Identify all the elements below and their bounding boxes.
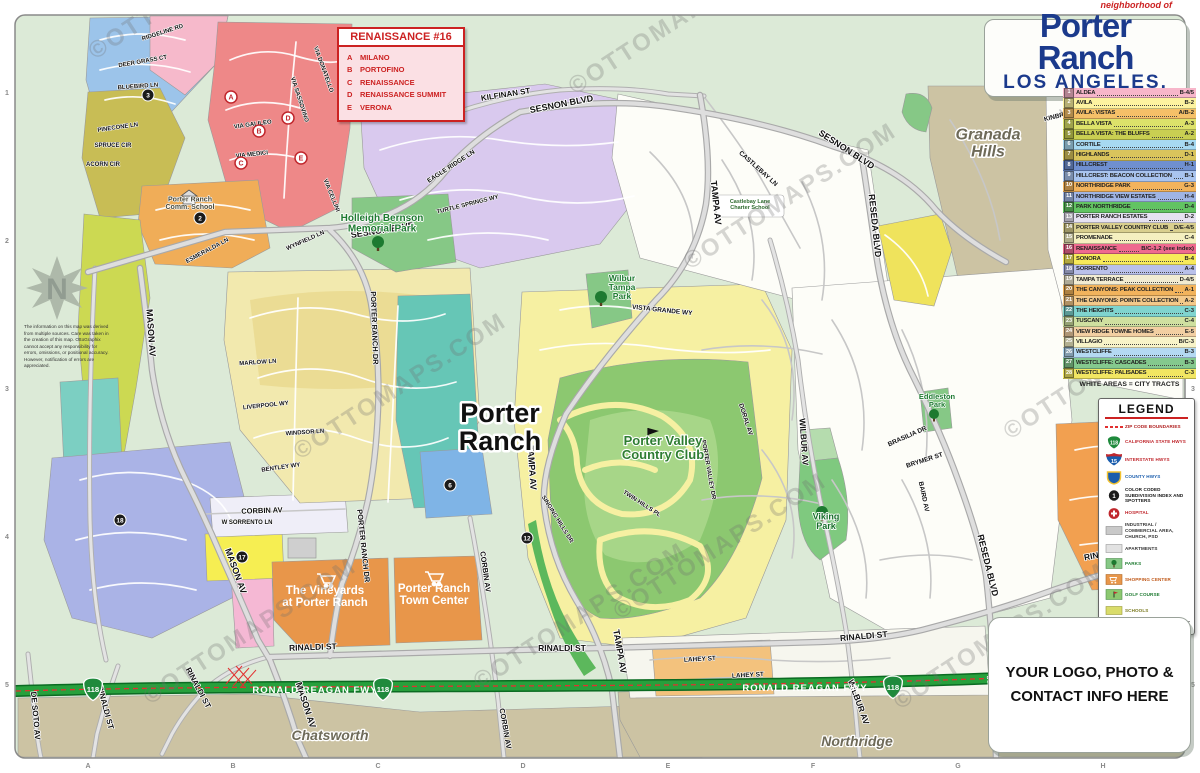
legend-symbol-label: GOLF COURSE <box>1125 592 1160 598</box>
index-number-chip: 3 <box>1064 108 1074 118</box>
index-number-chip: 25 <box>1064 337 1074 347</box>
shopping-center-icon <box>1103 573 1125 586</box>
index-subdivision-name: BELLA VISTA: THE BLUFFS <box>1076 131 1150 137</box>
index-grid-ref: C-3 <box>1185 370 1195 376</box>
hospital-icon <box>1103 507 1125 520</box>
subdivision-index-row: 5BELLA VISTA: THE BLUFFSA-2 <box>1063 130 1196 140</box>
county-hwy-shield-icon <box>1103 470 1125 485</box>
grid-column-label: C <box>375 763 380 770</box>
industrial-block <box>288 538 316 558</box>
poi-label: VikingPark <box>813 511 840 531</box>
legend-symbol-row: 118CALIFORNIA STATE HWYS <box>1103 435 1190 450</box>
disclaimer-text: The information on this map was derived … <box>24 324 110 370</box>
subdivision-index-row: 19TAMPA TERRACED-4/5 <box>1063 275 1196 285</box>
index-number-chip: 13 <box>1064 212 1074 222</box>
index-dot-leader <box>1105 318 1182 325</box>
svg-text:2: 2 <box>198 216 202 223</box>
legend-symbol-row: COUNTY HWYS <box>1103 470 1190 485</box>
index-dot-leader <box>1148 360 1182 367</box>
index-grid-ref: B-3 <box>1185 360 1195 366</box>
index-dot-leader <box>1158 193 1183 200</box>
legend-symbol-row: 1COLOR CODED SUBDIVISION INDEX AND SPOTT… <box>1103 487 1190 504</box>
index-grid-ref: A-4 <box>1185 266 1195 272</box>
legend-symbol-row: SHOPPING CENTER <box>1103 573 1190 586</box>
subdivision-index-rows: 1ALDEAB-4/52AVILAB-23AVILA: VISTASA/B-24… <box>1063 88 1196 379</box>
renaissance-index-entry: BPORTOFINO <box>347 64 455 76</box>
svg-text:C: C <box>238 161 243 168</box>
index-number-chip: 24 <box>1064 327 1074 337</box>
parks-swatch-icon <box>1103 557 1125 570</box>
legend-symbol-label: COLOR CODED SUBDIVISION INDEX AND SPOTTE… <box>1125 487 1190 504</box>
legend-symbol-row: GOLF COURSE <box>1103 588 1190 601</box>
legend-symbol-label: PARKS <box>1125 561 1141 567</box>
index-grid-ref: G-3 <box>1184 183 1194 189</box>
index-dot-leader <box>1114 349 1183 356</box>
index-subdivision-name: VILLAGIO <box>1076 339 1102 345</box>
subdivision-index-row: 23TUSCANYC-4 <box>1063 317 1196 327</box>
grid-column-label: B <box>230 763 235 770</box>
legend-symbol-rows: ZIP CODE BOUNDARIES118CALIFORNIA STATE H… <box>1103 422 1190 617</box>
poi-label: Porter RanchTown Center <box>398 583 470 607</box>
index-subdivision-name: SORRENTO <box>1076 266 1108 272</box>
index-dot-leader <box>1152 131 1183 138</box>
index-grid-ref: D-1 <box>1185 152 1195 158</box>
poi-label: Holleigh BernsonMemorial Park <box>341 213 424 235</box>
renaissance-spotter: D <box>282 112 294 124</box>
svg-text:15: 15 <box>1111 459 1117 465</box>
legend-symbol-label: SCHOOLS <box>1125 608 1148 614</box>
renaissance-entry-key: B <box>347 64 360 76</box>
legend-box: LEGEND ZIP CODE BOUNDARIES118CALIFORNIA … <box>1098 398 1195 635</box>
index-grid-ref: B-1 <box>1185 173 1195 179</box>
index-grid-ref: B-2 <box>1185 100 1195 106</box>
poi-label: Porter ValleyCountry Club <box>622 433 704 462</box>
legend-symbol-row: PARKS <box>1103 557 1190 570</box>
index-number-chip: 28 <box>1064 368 1074 378</box>
grid-column-label: G <box>955 763 961 770</box>
index-dot-leader <box>1102 141 1182 148</box>
index-dot-leader <box>1149 214 1182 221</box>
white-areas-note: WHITE AREAS = CITY TRACTS <box>1063 381 1196 388</box>
index-number-chip: 16 <box>1064 244 1074 254</box>
svg-text:D: D <box>285 116 290 123</box>
subdivision-index-row: 15PROMENADEC-4 <box>1063 233 1196 243</box>
index-number-chip: 20 <box>1064 285 1074 295</box>
index-dot-leader <box>1103 256 1183 263</box>
apartments-swatch-icon <box>1103 542 1125 555</box>
legend-symbol-label: COUNTY HWYS <box>1125 474 1160 480</box>
legend-symbol-row: ZIP CODE BOUNDARIES <box>1103 422 1190 432</box>
renaissance-entry-key: A <box>347 52 360 64</box>
subdivision-index-row: 13PORTER RANCH ESTATESD-2 <box>1063 213 1196 223</box>
street-label: CORBIN AV <box>241 505 283 515</box>
index-grid-ref: A-2 <box>1185 298 1195 304</box>
index-dot-leader <box>1174 173 1183 180</box>
svg-text:A: A <box>228 95 233 102</box>
legend-symbol-row: INDUSTRIAL / COMMERCIAL AREA, CHURCH, PS… <box>1103 522 1190 539</box>
state-route-number: 118 <box>377 685 390 694</box>
index-dot-leader <box>1125 276 1177 283</box>
renaissance-entry-name: MILANO <box>360 52 390 64</box>
index-subdivision-name: TAMPA TERRACE <box>1076 277 1123 283</box>
subdivision-spotter: 18 <box>114 514 126 526</box>
index-grid-ref: B/C-3 <box>1179 339 1194 345</box>
legend-title: LEGEND <box>1103 402 1190 416</box>
index-subdivision-name: WESTCLIFFE <box>1076 349 1112 355</box>
subdivision-index: 1ALDEAB-4/52AVILAB-23AVILA: VISTASA/B-24… <box>1063 88 1196 388</box>
index-subdivision-name: RENAISSANCE <box>1076 246 1117 252</box>
index-dot-leader <box>1115 308 1182 315</box>
index-number-chip: 5 <box>1064 129 1074 139</box>
subdivision-spotter-icon: 1 <box>1103 489 1125 502</box>
index-dot-leader <box>1111 152 1182 159</box>
page-title: Porter Ranch <box>991 10 1180 73</box>
renaissance-spotter: A <box>225 91 237 103</box>
index-number-chip: 1 <box>1064 88 1074 98</box>
state-route-number: 118 <box>87 685 100 694</box>
svg-text:3: 3 <box>146 93 150 100</box>
school-swatch-icon <box>1103 604 1125 617</box>
index-subdivision-name: BELLA VISTA <box>1076 121 1112 127</box>
index-subdivision-name: CORTILE <box>1076 142 1100 148</box>
index-subdivision-name: HIGHLANDS <box>1076 152 1109 158</box>
index-dot-leader <box>1115 235 1183 242</box>
index-number-chip: 6 <box>1064 140 1074 150</box>
index-grid-ref: B-4 <box>1185 256 1195 262</box>
index-subdivision-name: NORTHRIDGE PARK <box>1076 183 1131 189</box>
grid-column-label: F <box>811 763 816 770</box>
index-subdivision-name: WESTCLIFFE: CASCADES <box>1076 360 1146 366</box>
grid-row-label: 4 <box>5 534 9 541</box>
index-dot-leader <box>1175 287 1182 294</box>
renaissance-index-entry: AMILANO <box>347 52 455 64</box>
contact-placeholder-box: YOUR LOGO, PHOTO & CONTACT INFO HERE <box>988 617 1191 753</box>
legend-symbol-label: CALIFORNIA STATE HWYS <box>1125 439 1186 445</box>
index-number-chip: 21 <box>1064 296 1074 306</box>
index-grid-ref: C-3 <box>1185 308 1195 314</box>
grid-row-label: 3 <box>5 386 9 393</box>
grid-row-label: 2 <box>5 238 9 245</box>
subdivision-index-row: 8HILLCRESTH-1 <box>1063 161 1196 171</box>
index-dot-leader <box>1114 121 1183 128</box>
legend-symbol-row: APARTMENTS <box>1103 542 1190 555</box>
subdivision-index-row: 16RENAISSANCEB/C-1,2 (see index) <box>1063 244 1196 254</box>
index-number-chip: 14 <box>1064 223 1074 233</box>
index-subdivision-name: AVILA <box>1076 100 1092 106</box>
index-grid-ref: C-4 <box>1185 235 1195 241</box>
renaissance-index-entry: DRENAISSANCE SUMMIT <box>347 89 455 101</box>
index-number-chip: 23 <box>1064 316 1074 326</box>
index-subdivision-name: TUSCANY <box>1076 318 1103 324</box>
poi-label: Porter RanchComm. School <box>165 196 214 211</box>
renaissance-entry-key: E <box>347 102 360 114</box>
subdivision-spotter: 12 <box>521 532 533 544</box>
index-number-chip: 15 <box>1064 233 1074 243</box>
street-label: ACORN CIR <box>86 162 121 168</box>
subdivision-index-row: 1ALDEAB-4/5 <box>1063 88 1196 98</box>
index-subdivision-name: PARK NORTHRIDGE <box>1076 204 1131 210</box>
index-grid-ref: D-4 <box>1185 204 1195 210</box>
grid-column-label: A <box>85 763 90 770</box>
legend-symbol-row: HOSPITAL <box>1103 507 1190 520</box>
street-label: W SORRENTO LN <box>222 520 273 526</box>
svg-text:12: 12 <box>523 536 531 543</box>
index-number-chip: 19 <box>1064 275 1074 285</box>
freeway-label: RONALD REAGAN FWY <box>252 685 377 696</box>
subdivision-index-row: 20THE CANYONS: PEAK COLLECTIONA-1 <box>1063 285 1196 295</box>
index-dot-leader <box>1156 328 1183 335</box>
index-subdivision-name: PORTER RANCH ESTATES <box>1076 214 1147 220</box>
index-number-chip: 2 <box>1064 98 1074 108</box>
renaissance-index-box: RENAISSANCE #16 AMILANOBPORTOFINOCRENAIS… <box>337 27 465 122</box>
subdivision-index-row: 12PARK NORTHRIDGED-4 <box>1063 202 1196 212</box>
legend-rule <box>1105 417 1188 419</box>
golf-course-icon <box>1103 588 1125 601</box>
index-subdivision-name: PORTER VALLEY COUNTRY CLUB <box>1076 225 1168 231</box>
legend-symbol-label: ZIP CODE BOUNDARIES <box>1125 424 1181 430</box>
index-grid-ref: B-3 <box>1185 349 1195 355</box>
index-grid-ref: D-4/5 <box>1180 277 1194 283</box>
index-grid-ref: B-4 <box>1185 142 1195 148</box>
legend-symbol-label: INDUSTRIAL / COMMERCIAL AREA, CHURCH, PS… <box>1125 522 1190 539</box>
porter-ranch-map-poster: N SESNON BLVDSESNON BLVDSESNON BLVDKILFI… <box>0 0 1200 773</box>
index-number-chip: 17 <box>1064 254 1074 264</box>
grid-column-label: E <box>666 763 671 770</box>
renaissance-index-entry: CRENAISSANCE <box>347 77 455 89</box>
legend-symbol-label: HOSPITAL <box>1125 510 1149 516</box>
california-hwy-shield-icon: 118 <box>1103 435 1125 450</box>
subdivision-index-row: 26WESTCLIFFEB-3 <box>1063 348 1196 358</box>
interstate-shield-icon: 15 <box>1103 452 1125 467</box>
street-label: SPRUCE CIR <box>94 143 132 149</box>
index-number-chip: 9 <box>1064 171 1074 181</box>
index-number-chip: 11 <box>1064 192 1074 202</box>
grid-row-label: 5 <box>1191 682 1195 689</box>
renaissance-entry-name: VERONA <box>360 102 392 114</box>
renaissance-entry-key: D <box>347 89 360 101</box>
index-subdivision-name: THE CANYONS: POINTE COLLECTION <box>1076 298 1178 304</box>
subdivision-spotter: 3 <box>142 89 154 101</box>
renaissance-spotter: B <box>253 125 265 137</box>
index-grid-ref: B/C-1,2 (see index) <box>1141 246 1194 252</box>
index-dot-leader <box>1110 266 1183 273</box>
subdivision-index-row: 18SORRENTOA-4 <box>1063 265 1196 275</box>
index-subdivision-name: HILLCREST: BEACON COLLECTION <box>1076 173 1172 179</box>
legend-symbol-label: APARTMENTS <box>1125 546 1158 552</box>
subdivision-spotter: 17 <box>236 551 248 563</box>
subdivision-index-row: 14PORTER VALLEY COUNTRY CLUBD/E-4/5 <box>1063 223 1196 233</box>
poi-label: PorterRanch <box>459 398 542 456</box>
subdivision-spotter: 6 <box>444 479 456 491</box>
contact-placeholder-text: YOUR LOGO, PHOTO & CONTACT INFO HERE <box>1005 661 1173 709</box>
index-grid-ref: B-4/5 <box>1180 90 1194 96</box>
subdivision-index-row: 7HIGHLANDSD-1 <box>1063 150 1196 160</box>
index-grid-ref: C-4 <box>1185 318 1195 324</box>
index-dot-leader <box>1104 339 1176 346</box>
index-grid-ref: D/E-4/5 <box>1174 225 1194 231</box>
index-grid-ref: H-4 <box>1185 194 1195 200</box>
index-dot-leader <box>1119 245 1140 252</box>
subdivision-index-row: 27WESTCLIFFE: CASCADESB-3 <box>1063 358 1196 368</box>
index-subdivision-name: PROMENADE <box>1076 235 1113 241</box>
renaissance-spotter: E <box>295 152 307 164</box>
zip-boundary-line-icon <box>1103 422 1125 432</box>
poi-label: Chatsworth <box>292 727 369 743</box>
index-dot-leader <box>1109 162 1182 169</box>
renaissance-spotter: C <box>235 157 247 169</box>
legend-symbol-row: SCHOOLS <box>1103 604 1190 617</box>
renaissance-entry-name: RENAISSANCE <box>360 77 415 89</box>
subdivision-index-row: 3AVILA: VISTASA/B-2 <box>1063 109 1196 119</box>
index-grid-ref: A/B-2 <box>1179 110 1194 116</box>
index-dot-leader <box>1170 224 1172 231</box>
index-subdivision-name: AVILA: VISTAS <box>1076 110 1115 116</box>
index-grid-ref: H-1 <box>1185 162 1195 168</box>
index-dot-leader <box>1097 89 1177 96</box>
industrial-swatch-icon <box>1103 524 1125 537</box>
subdivision-index-row: 10NORTHRIDGE PARKG-3 <box>1063 182 1196 192</box>
legend-symbol-label: SHOPPING CENTER <box>1125 577 1171 583</box>
index-number-chip: 4 <box>1064 119 1074 129</box>
index-subdivision-name: WESTCLIFFE: PALISADES <box>1076 370 1146 376</box>
index-dot-leader <box>1133 204 1183 211</box>
street-label: RINALDI ST <box>289 641 338 653</box>
index-number-chip: 8 <box>1064 160 1074 170</box>
index-grid-ref: D-2 <box>1185 214 1195 220</box>
svg-text:118: 118 <box>1110 440 1118 446</box>
subdivision-index-row: 28WESTCLIFFE: PALISADESC-3 <box>1063 369 1196 379</box>
index-number-chip: 7 <box>1064 150 1074 160</box>
index-dot-leader <box>1133 183 1183 190</box>
subdivision-index-row: 9HILLCREST: BEACON COLLECTIONB-1 <box>1063 171 1196 181</box>
grid-row-label: 5 <box>5 682 9 689</box>
legend-symbol-row: 15INTERSTATE HWYS <box>1103 452 1190 467</box>
svg-text:E: E <box>299 156 304 163</box>
subdivision-index-row: 17SONORAB-4 <box>1063 254 1196 264</box>
index-number-chip: 26 <box>1064 347 1074 357</box>
subdivision-index-row: 6CORTILEB-4 <box>1063 140 1196 150</box>
renaissance-entry-key: C <box>347 77 360 89</box>
grid-column-label: H <box>1100 763 1105 770</box>
index-grid-ref: A-1 <box>1185 287 1195 293</box>
index-subdivision-name: VIEW RIDGE TOWNE HOMES <box>1076 329 1154 335</box>
grid-column-label: D <box>520 763 525 770</box>
subdivision-index-row: 22THE HEIGHTSC-3 <box>1063 306 1196 316</box>
renaissance-index-entry: EVERONA <box>347 102 455 114</box>
index-grid-ref: A-3 <box>1185 121 1195 127</box>
renaissance-index-entries: AMILANOBPORTOFINOCRENAISSANCEDRENAISSANC… <box>339 47 463 120</box>
index-dot-leader <box>1148 370 1182 377</box>
freeway-label: RONALD REAGAN FWY <box>742 683 867 694</box>
legend-symbol-label: INTERSTATE HWYS <box>1125 457 1170 463</box>
svg-text:18: 18 <box>116 518 124 525</box>
index-subdivision-name: ALDEA <box>1076 90 1095 96</box>
index-subdivision-name: HILLCREST <box>1076 162 1107 168</box>
index-grid-ref: A-2 <box>1185 131 1195 137</box>
subdivision-index-row: 4BELLA VISTAA-3 <box>1063 119 1196 129</box>
subdivision-index-row: 2AVILAB-2 <box>1063 98 1196 108</box>
index-number-chip: 18 <box>1064 264 1074 274</box>
index-number-chip: 12 <box>1064 202 1074 212</box>
index-subdivision-name: THE CANYONS: PEAK COLLECTION <box>1076 287 1173 293</box>
index-number-chip: 27 <box>1064 358 1074 368</box>
index-dot-leader <box>1094 100 1182 107</box>
subdivision-index-row: 11NORTHRIDGE VIEW ESTATESH-4 <box>1063 192 1196 202</box>
renaissance-index-title: RENAISSANCE #16 <box>339 29 463 47</box>
title-card: neighborhood of Porter Ranch LOS ANGELES… <box>984 19 1187 97</box>
subdivision-spotter: 2 <box>194 212 206 224</box>
renaissance-entry-name: PORTOFINO <box>360 64 404 76</box>
subdivision-index-row: 21THE CANYONS: POINTE COLLECTIONA-2 <box>1063 296 1196 306</box>
index-dot-leader <box>1180 297 1182 304</box>
index-subdivision-name: SONORA <box>1076 256 1101 262</box>
poi-label: Northridge <box>821 733 893 749</box>
compass-north-label: N <box>46 273 68 306</box>
svg-text:17: 17 <box>238 555 246 562</box>
renaissance-entry-name: RENAISSANCE SUMMIT <box>360 89 446 101</box>
index-dot-leader <box>1117 110 1177 117</box>
subdivision-index-row: 25VILLAGIOB/C-3 <box>1063 337 1196 347</box>
svg-text:6: 6 <box>448 483 452 490</box>
index-grid-ref: E-5 <box>1185 329 1194 335</box>
index-number-chip: 10 <box>1064 181 1074 191</box>
svg-text:B: B <box>256 129 261 136</box>
subdivision-index-row: 24VIEW RIDGE TOWNE HOMESE-5 <box>1063 327 1196 337</box>
index-subdivision-name: THE HEIGHTS <box>1076 308 1113 314</box>
index-subdivision-name: NORTHRIDGE VIEW ESTATES <box>1076 194 1156 200</box>
grid-row-label: 1 <box>5 90 9 97</box>
index-number-chip: 22 <box>1064 306 1074 316</box>
